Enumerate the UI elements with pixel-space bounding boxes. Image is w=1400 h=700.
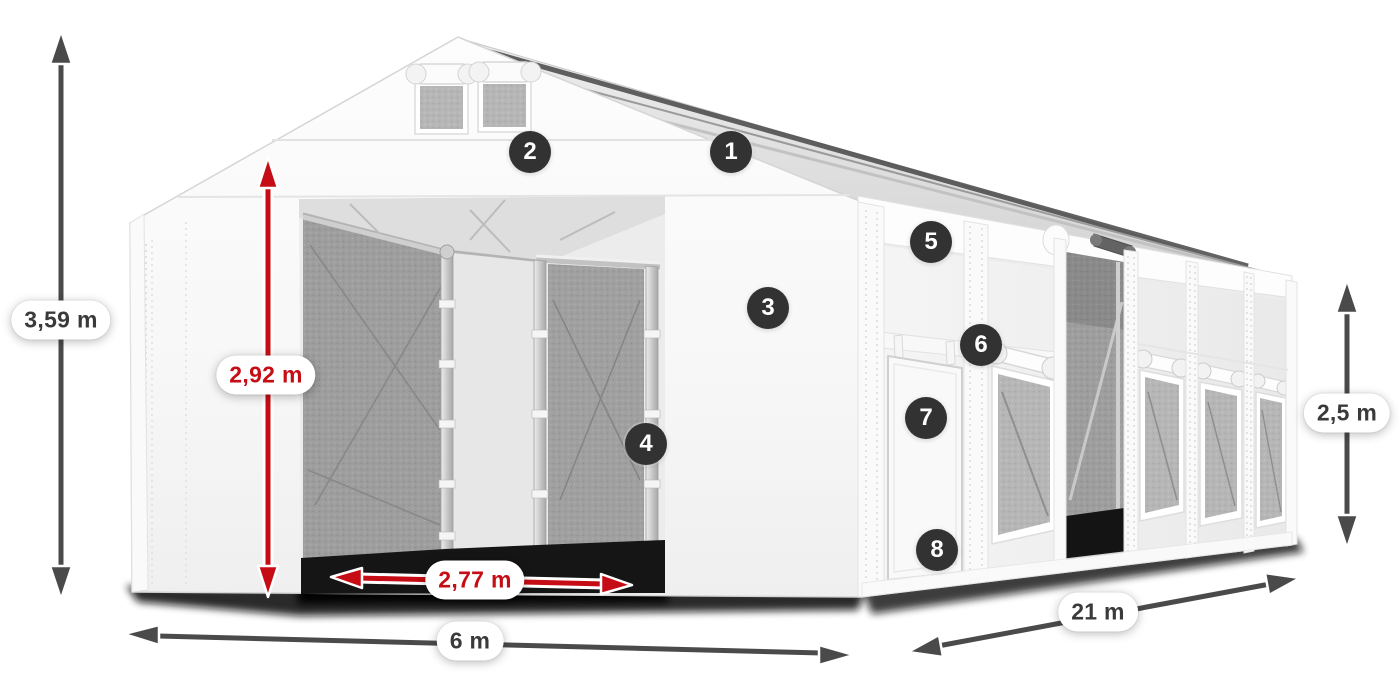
hotspot-badge-3[interactable]: 3 [747, 287, 789, 329]
side-window-4 [1251, 374, 1291, 528]
product-figure: 3,59 m 2,92 m 2,77 m 6 m 21 m 2,5 m 1 2 … [0, 0, 1400, 700]
side-window-2 [1134, 350, 1190, 521]
dimension-label-side-length: 21 m [1058, 593, 1138, 632]
hotspot-badge-6[interactable]: 6 [960, 324, 1002, 366]
hotspot-badge-2[interactable]: 2 [509, 131, 551, 173]
tent-illustration [0, 0, 1400, 700]
gable-vent-right [469, 62, 541, 132]
gable-vent-left [406, 64, 478, 134]
entrance-opening [299, 196, 665, 594]
dimension-label-front-width: 6 m [437, 622, 504, 661]
entrance-gap [453, 253, 538, 556]
hotspot-badge-8[interactable]: 8 [916, 529, 958, 571]
dimension-label-side-height: 2,5 m [1304, 394, 1390, 433]
dimension-label-entrance-width: 2,77 m [425, 561, 524, 600]
hotspot-badge-7[interactable]: 7 [905, 397, 947, 439]
dimension-label-entrance-height: 2,92 m [216, 356, 315, 395]
side-window-3 [1195, 363, 1247, 526]
hotspot-badge-4[interactable]: 4 [625, 423, 667, 465]
side-opening [1066, 252, 1124, 560]
inner-doorway [532, 259, 660, 554]
entrance-mesh-door-left [303, 217, 455, 591]
hotspot-badge-5[interactable]: 5 [910, 221, 952, 263]
dimension-label-total-height: 3,59 m [11, 301, 110, 340]
hotspot-badge-1[interactable]: 1 [710, 131, 752, 173]
